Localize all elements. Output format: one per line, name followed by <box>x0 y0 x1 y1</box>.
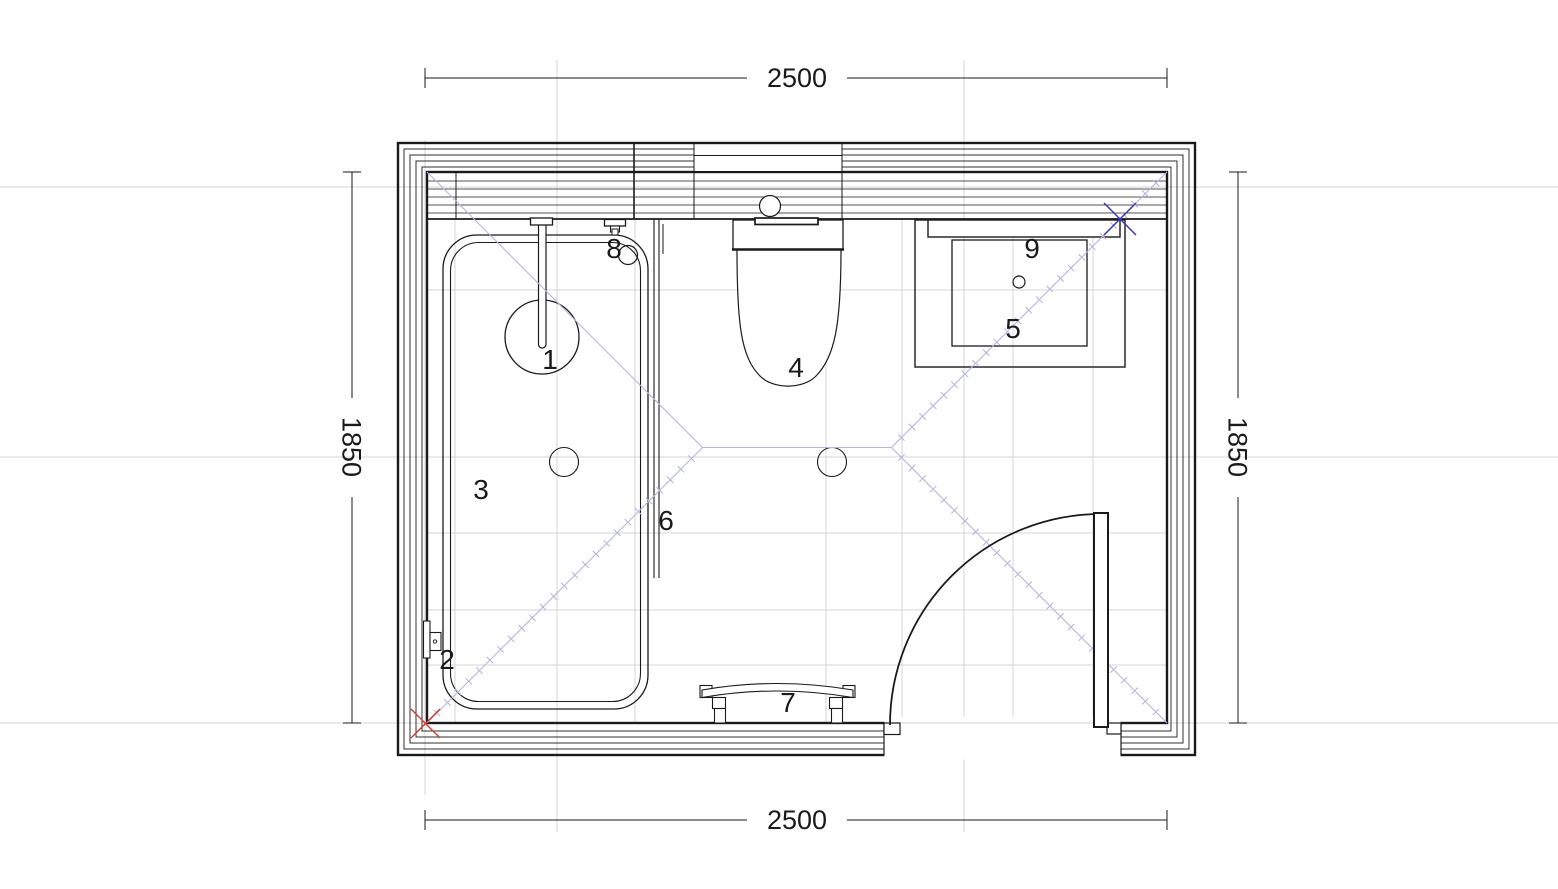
dimension-bottom: 2500 <box>425 805 1167 835</box>
dimension-bottom-value: 2500 <box>767 805 827 835</box>
dimension-top-value: 2500 <box>767 63 827 93</box>
door <box>884 513 1121 760</box>
bathtub-drain <box>550 448 579 477</box>
dimension-left: 1850 <box>337 172 367 723</box>
fixture2-wall-plate <box>424 621 431 658</box>
dimension-left-value: 1850 <box>337 417 367 477</box>
dimension-right: 1850 <box>1223 172 1253 723</box>
floor-plan-canvas: 1 2 3 4 5 6 7 8 9 2500 2500 1850 1850 <box>0 0 1558 889</box>
shower-wall-bracket <box>531 218 553 225</box>
window-cutout <box>694 146 842 171</box>
bench-leg <box>715 709 726 724</box>
tap-hole <box>1013 276 1025 288</box>
reference-grid <box>0 60 1558 832</box>
door-jamb-right <box>1107 723 1121 734</box>
envelope-diagonal-bottom-left <box>427 448 703 724</box>
bathroom-floor-plan-page: 1 2 3 4 5 6 7 8 9 2500 2500 1850 1850 <box>0 0 1558 889</box>
toilet-flush-button <box>760 196 781 217</box>
door-leaf <box>1094 513 1108 727</box>
fixture-label-1: 1 <box>542 344 558 375</box>
bench-leg <box>713 698 726 709</box>
door-jamb-left <box>884 723 900 735</box>
bench-bar <box>702 684 853 698</box>
bench-leg <box>830 698 843 709</box>
fixture-label-6: 6 <box>658 505 674 536</box>
toilet-wall-bar <box>755 218 818 225</box>
bench-rail <box>700 684 855 724</box>
fixture-label-4: 4 <box>788 352 804 383</box>
dimension-top: 2500 <box>425 63 1167 93</box>
fixture-label-3: 3 <box>473 474 489 505</box>
fixture-label-8: 8 <box>606 233 622 264</box>
fixture8-bracket <box>605 220 626 227</box>
floor-drain <box>818 448 847 477</box>
fixture-label-7: 7 <box>780 687 796 718</box>
dimension-right-value: 1850 <box>1223 417 1253 477</box>
envelope-diagonal-bottom-right <box>892 448 1168 724</box>
fixture-label-5: 5 <box>1005 313 1021 344</box>
door-swing-arc <box>890 514 1101 725</box>
fixture-label-9: 9 <box>1024 233 1040 264</box>
bench-leg <box>832 709 843 724</box>
fixture-label-2: 2 <box>439 644 455 675</box>
